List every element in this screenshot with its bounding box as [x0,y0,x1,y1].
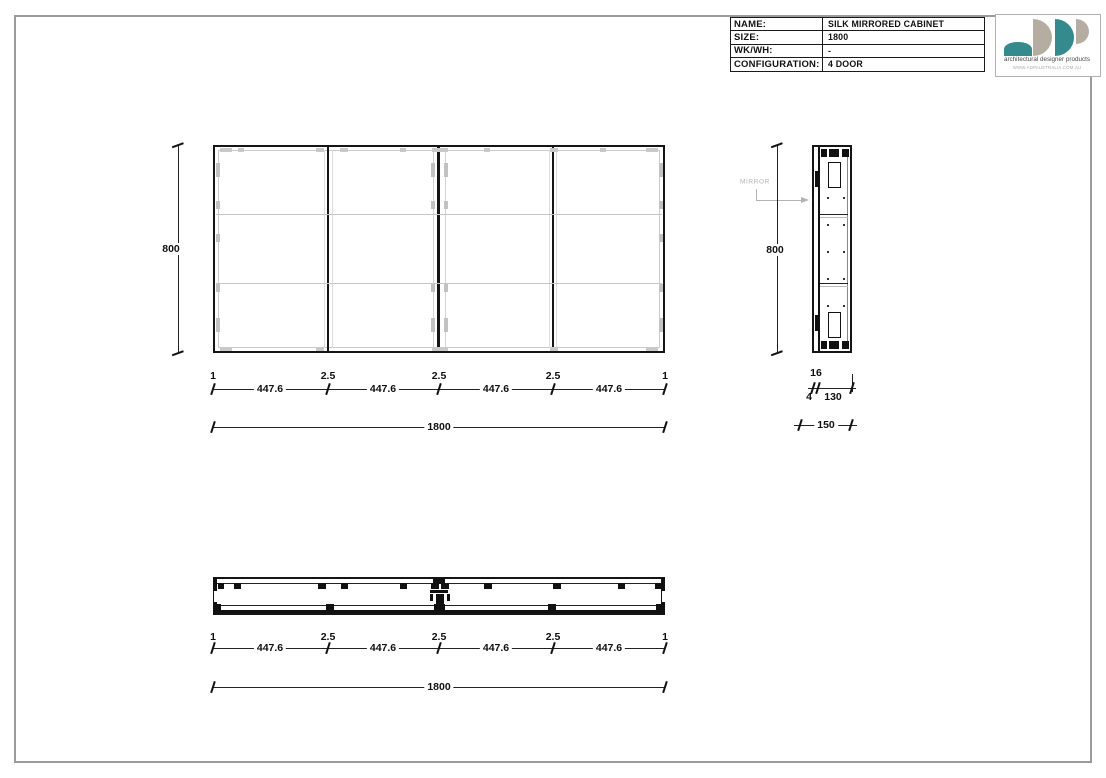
detail-mark [618,583,625,589]
title-value: 1800 [823,31,984,43]
detail-mark [430,594,433,601]
detail-mark [447,594,450,601]
detail-mark [432,347,448,351]
detail-mark [820,286,848,287]
detail-mark [600,148,606,152]
detail-mark [434,604,445,611]
mirror-callout-label: MIRROR [740,179,770,186]
title-value: 4 DOOR [823,58,984,71]
dim-boundary-label: 2.5 [546,370,561,382]
detail-mark [843,278,845,280]
logo-tagline: architectural designer products [995,56,1099,63]
detail-mark [400,583,407,589]
title-row-name: NAME: SILK MIRRORED CABINET [731,18,984,31]
detail-mark [821,341,827,349]
detail-mark [843,251,845,253]
detail-mark [847,150,848,348]
detail-mark [431,201,435,209]
detail-mark [820,217,848,218]
detail-mark [843,197,845,199]
dim-boundary-label: 1 [662,631,668,643]
detail-mark [341,583,348,589]
detail-mark [829,341,839,349]
side-height-dim-label: 800 [763,244,787,256]
overall-depth-label: 150 [814,419,838,431]
detail-mark [436,594,444,604]
title-row-wkwh: WK/WH: - [731,45,984,58]
dim-segment-label: 447.6 [593,383,625,395]
detail-mark [238,148,244,152]
detail-mark [820,283,848,285]
detail-mark [216,163,220,177]
detail-mark [216,201,220,209]
dim-segment-label: 447.6 [254,642,286,654]
drawing-sheet: NAME: SILK MIRRORED CABINET SIZE: 1800 W… [0,0,1106,778]
dim-boundary-label: 1 [210,370,216,382]
dim-segment-label: 447.6 [480,383,512,395]
title-label: SIZE: [731,31,823,43]
detail-mark [827,224,829,226]
detail-mark [220,148,232,152]
detail-mark [431,284,435,292]
detail-mark [326,604,334,611]
detail-mark [843,305,845,307]
detail-mark [843,224,845,226]
detail-mark [484,148,490,152]
title-value: - [823,45,984,57]
title-block: NAME: SILK MIRRORED CABINET SIZE: 1800 W… [730,17,985,72]
detail-mark [234,583,241,589]
detail-mark [550,347,558,351]
detail-mark [216,234,220,242]
detail-mark [431,318,435,332]
front-overall-width-label: 1800 [424,421,453,433]
detail-mark [340,148,348,152]
detail-mark [444,318,448,332]
dim-boundary-label: 2.5 [432,631,447,643]
cutout-detail [828,162,841,188]
detail-mark [400,148,406,152]
detail-mark [827,251,829,253]
title-row-configuration: CONFIGURATION: 4 DOOR [731,58,984,71]
dim-segment-label: 447.6 [367,642,399,654]
detail-mark [550,148,558,152]
dim-boundary-label: 2.5 [432,370,447,382]
dim-boundary-label: 1 [662,370,668,382]
detail-mark [818,147,820,351]
detail-mark [444,163,448,177]
detail-mark [659,234,663,242]
detail-mark [659,318,663,332]
dim-boundary-label: 2.5 [321,370,336,382]
detail-mark [548,604,556,611]
detail-mark [216,318,220,332]
detail-mark [444,201,448,209]
detail-mark [316,148,324,152]
detail-mark [556,150,557,348]
logo-website: WWW.ADPAUSTRALIA.COM.AU [995,65,1099,70]
detail-mark [815,171,818,187]
dim-segment-label: 447.6 [480,642,512,654]
detail-mark [432,148,448,152]
detail-mark [662,591,665,602]
detail-mark [659,284,663,292]
detail-mark [553,583,561,589]
detail-mark [327,147,329,351]
detail-mark [218,583,224,589]
detail-mark [324,150,325,348]
mirror-thickness-label: 16 [810,367,822,379]
detail-mark [842,341,849,349]
detail-mark [827,278,829,280]
detail-mark [220,347,232,351]
detail-mark [433,578,445,584]
detail-mark [216,214,662,215]
detail-mark [659,201,663,209]
detail-mark [827,305,829,307]
detail-mark [820,214,848,216]
detail-mark [216,283,662,284]
detail-mark [332,150,333,348]
dim-segment-label: 447.6 [593,642,625,654]
title-label: CONFIGURATION: [731,58,823,71]
detail-mark [815,315,818,331]
detail-mark [552,147,554,351]
dim-boundary-label: 1 [210,631,216,643]
title-label: WK/WH: [731,45,823,57]
detail-mark [214,591,217,602]
title-label: NAME: [731,18,823,30]
plan-overall-width-label: 1800 [424,681,453,693]
detail-mark [216,284,220,292]
detail-mark [431,163,435,177]
detail-mark [318,583,326,589]
carcass-depth-label: 130 [824,391,842,403]
dim-boundary-label: 2.5 [321,631,336,643]
title-row-size: SIZE: 1800 [731,31,984,44]
dim-segment-label: 447.6 [367,383,399,395]
cutout-detail [828,312,841,338]
detail-mark [659,163,663,177]
detail-mark [549,150,550,348]
detail-mark [808,388,856,389]
detail-mark [430,590,448,593]
gap-dim-label: 4 [806,391,812,403]
dim-segment-label: 447.6 [254,383,286,395]
detail-mark [842,149,849,157]
detail-mark [437,147,440,351]
detail-mark [484,583,492,589]
detail-mark [646,148,658,152]
detail-mark [827,197,829,199]
detail-mark [756,200,802,201]
front-height-dim-label: 800 [159,243,183,255]
detail-mark [821,149,827,157]
title-value: SILK MIRRORED CABINET [823,18,984,30]
detail-mark [316,347,324,351]
logo-shape-a-icon [1004,42,1032,56]
detail-mark [646,347,658,351]
dim-boundary-label: 2.5 [546,631,561,643]
leader-arrow-icon [801,197,809,203]
detail-mark [829,149,839,157]
detail-mark [444,284,448,292]
